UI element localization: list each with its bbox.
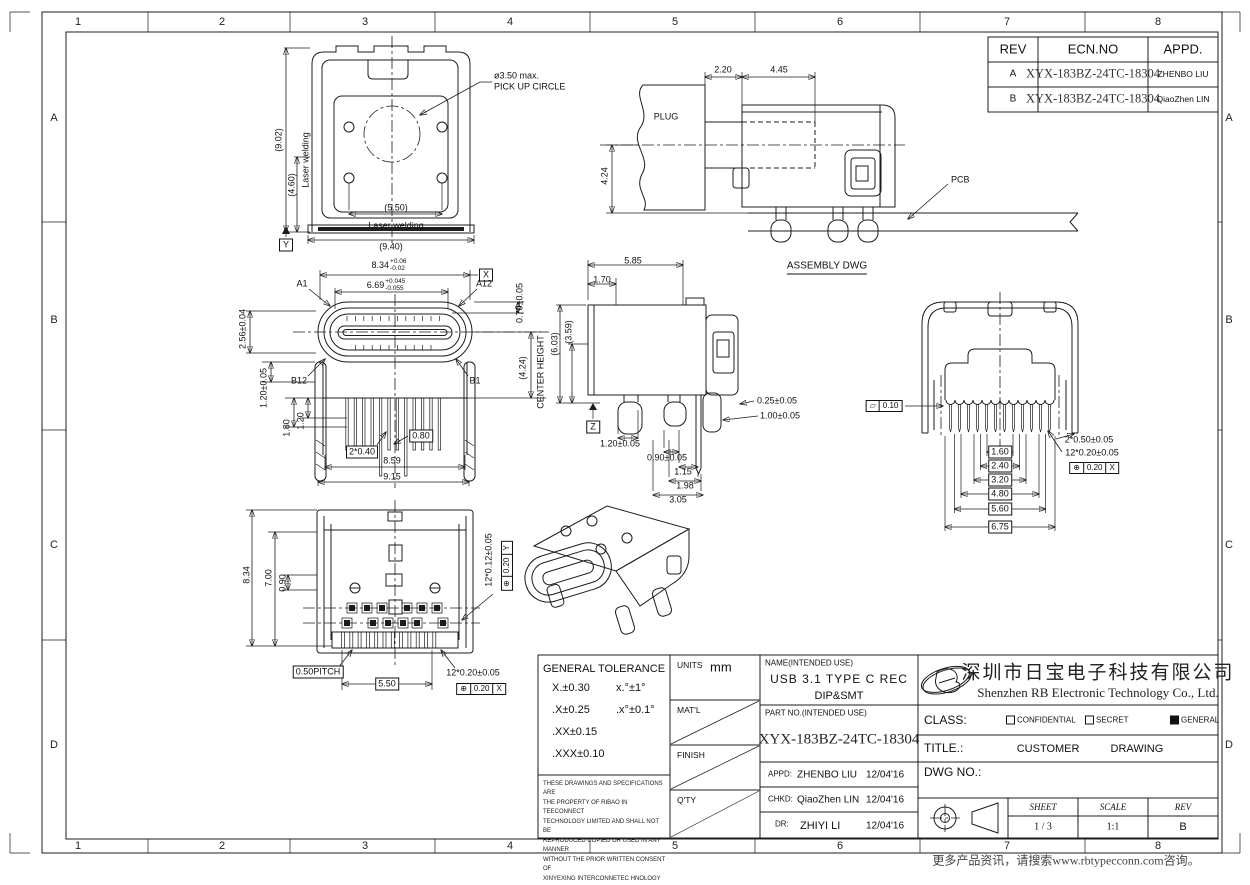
rev-header: REV — [1000, 42, 1027, 57]
rev-label: REV — [1175, 802, 1192, 812]
rev-value: B — [1179, 821, 1186, 833]
pin-b12-label: B12 — [291, 377, 307, 386]
class-secret: SECRET — [1096, 716, 1128, 725]
plug-label: PLUG — [654, 113, 679, 122]
datum-z: Z — [586, 421, 600, 434]
matl-label: MAT'L — [677, 705, 701, 715]
zone-col: 3 — [362, 16, 368, 28]
zone-col: 1 — [75, 840, 81, 852]
position-frame-y: ⊕ 0.20 Y — [501, 541, 513, 591]
dim-center-height-asm: 4.24 — [601, 167, 610, 185]
zone-row: C — [1225, 539, 1233, 551]
flatness-frame: ▱ 0.10 — [866, 400, 903, 412]
pin-a1-label: A1 — [296, 280, 307, 289]
zone-row: D — [50, 739, 58, 751]
dim-span-2: 2.40 — [988, 460, 1012, 473]
zone-col: 5 — [672, 840, 678, 852]
dim-pin-thickness: 0.25±0.05 — [757, 397, 797, 406]
zone-col: 1 — [75, 16, 81, 28]
dim-leg-3: 1.15 — [674, 468, 692, 477]
title-label: TITLE.: — [924, 741, 963, 755]
zone-col: 5 — [672, 16, 678, 28]
zone-col: 2 — [219, 16, 225, 28]
appd-date: 12/04'16 — [866, 770, 904, 781]
dim-leg-offset: 1.20±0.05 — [260, 368, 269, 408]
dim-total-height: (6.03) — [551, 332, 560, 356]
dim-tongue-offset: 0.70±0.05 — [516, 283, 525, 323]
units-value: mm — [710, 660, 732, 675]
laser-welding-note: Laser welding — [368, 222, 424, 231]
company-name-en: Shenzhen RB Electronic Technology Co., L… — [977, 685, 1218, 701]
zone-col: 4 — [507, 16, 513, 28]
name-label: NAME(INTENDED USE) — [765, 659, 853, 668]
laser-welding-note-vertical: Laser welding — [302, 132, 311, 188]
zone-col: 3 — [362, 840, 368, 852]
position-icon: ⊕ — [502, 576, 512, 590]
tol-r1b: x.°±1° — [616, 682, 646, 694]
dim-pin-len-1: 1.80 — [283, 419, 292, 437]
footer-note: 更多产品资讯，请搜索www.rbtypecconn.com咨询。 — [932, 852, 1199, 869]
dim-height-total: (9.02) — [275, 128, 284, 152]
checkbox-confidential — [1006, 716, 1015, 725]
drawing-title: CUSTOMER DRAWING — [1017, 743, 1164, 755]
zone-row: C — [50, 539, 58, 551]
pickup-circle-note: PICK UP CIRCLE — [494, 83, 565, 92]
zone-col: 8 — [1155, 16, 1161, 28]
zone-col: 2 — [219, 840, 225, 852]
zone-row: D — [1225, 739, 1233, 751]
zone-col: 4 — [507, 840, 513, 852]
zone-row: A — [1225, 112, 1232, 124]
zone-col: 7 — [1004, 840, 1010, 852]
dim-pin-len-2: 1.20 — [297, 412, 306, 430]
chkd-name: QiaoZhen LIN — [797, 795, 859, 806]
rev-a-ecn: XYX-183BZ-24TC-18304 — [1026, 67, 1160, 82]
position-icon: ⊕ — [1070, 463, 1084, 473]
rev-b-appd: QiaoZhen LIN — [1157, 94, 1210, 104]
units-label: UNITS — [677, 660, 703, 670]
dim-span-6: 6.75 — [988, 521, 1012, 534]
product-name-2: DIP&SMT — [815, 690, 864, 702]
dim-span-5: 5.60 — [988, 503, 1012, 516]
flatness-icon: ▱ — [867, 401, 880, 411]
tol-r1a: X.±0.30 — [552, 682, 590, 694]
dim-max-width: 9.15 — [383, 473, 401, 482]
tol-r2a: .X±0.25 — [552, 704, 590, 716]
dim-front-lip: 1.70 — [593, 276, 611, 285]
appd-header: APPD. — [1163, 42, 1202, 57]
dim-leg-5: 3.05 — [669, 496, 687, 505]
dim-tongue-width: 6.69 +0.045-0.055 — [367, 278, 406, 292]
dwg-no-label: DWG NO.: — [924, 765, 981, 779]
pin-a12-label: A12 — [476, 280, 492, 289]
tolerance-title: GENERAL TOLERANCE — [543, 663, 665, 675]
dim-leg-2: 0.90±0.05 — [647, 454, 687, 463]
zone-col: 6 — [837, 840, 843, 852]
legal-notice: THESE DRAWINGS AND SPECIFICATIONS ARE TH… — [543, 780, 667, 885]
dim-center-height: (4.24) — [519, 356, 528, 380]
class-confidential: CONFIDENTIAL — [1017, 716, 1076, 725]
qty-label: Q'TY — [677, 795, 696, 805]
position-icon: ⊕ — [457, 684, 471, 694]
pcb-label: PCB — [951, 176, 970, 185]
dim-plug-gap: 2.20 — [714, 66, 732, 75]
dim-rear-legs: 2*0.50±0.05 — [1065, 436, 1113, 445]
dr-label: DR: — [775, 820, 789, 829]
class-label: CLASS: — [924, 713, 967, 727]
chkd-label: CHKD: — [768, 795, 793, 804]
appd-label: APPD: — [768, 770, 792, 779]
scale-value: 1:1 — [1107, 822, 1120, 833]
dim-body-height: 7.00 — [265, 569, 274, 587]
dim-shell-height: 2.56±0.04 — [239, 309, 248, 349]
rev-b: B — [1010, 94, 1017, 105]
product-name: USB 3.1 TYPE C REC — [770, 672, 908, 686]
finish-label: FINISH — [677, 750, 705, 760]
pin-b1-label: B1 — [469, 377, 480, 386]
checkbox-secret — [1085, 716, 1094, 725]
dr-name: ZHIYI LI — [800, 820, 840, 832]
dim-pad-offset: 0.90 — [279, 574, 288, 592]
assembly-caption: ASSEMBLY DWG — [787, 262, 867, 275]
dim-shell-height-side: (3.59) — [565, 320, 574, 344]
chkd-date: 12/04'16 — [866, 795, 904, 806]
position-frame-x2: ⊕ 0.20 X — [456, 683, 506, 695]
zone-row: A — [50, 112, 57, 124]
zone-row: B — [1225, 314, 1232, 326]
tol-r4a: .XXX±0.10 — [552, 748, 605, 760]
dim-leg-span: 8.59 — [383, 457, 401, 466]
dim-weld-width: (5.50) — [384, 204, 408, 213]
appd-name: ZHENBO LIU — [797, 770, 857, 781]
rev-a: A — [1010, 69, 1017, 80]
zone-row: B — [50, 314, 57, 326]
dim-pitch: 0.50PITCH — [293, 666, 344, 679]
part-number: XYX-183BZ-24TC-18304 — [759, 732, 920, 749]
dim-span-1: 1.60 — [988, 446, 1012, 459]
dim-shell-width: 8.34 +0.06-0.02 — [372, 258, 407, 272]
part-label: PART NO.(INTENDED USE) — [765, 709, 867, 718]
class-general: GENERAL — [1181, 716, 1219, 725]
zone-col: 6 — [837, 16, 843, 28]
pickup-circle-dia: ø3.50 max. — [494, 72, 539, 81]
scale-label: SCALE — [1100, 802, 1127, 812]
rev-a-appd: ZHENBO LIU — [1157, 69, 1208, 79]
dim-width-total: (9.40) — [379, 243, 403, 252]
tol-r2b: .x°±0.1° — [616, 704, 655, 716]
rev-b-ecn: XYX-183BZ-24TC-18304 — [1026, 92, 1160, 107]
center-height-note: CENTER HEIGHT — [537, 335, 546, 409]
dr-date: 12/04'16 — [866, 821, 904, 832]
dim-pin-gap: 0.80 — [409, 430, 433, 443]
dim-leg-1: 1.20±0.05 — [600, 440, 640, 449]
sheet-value: 1 / 3 — [1034, 822, 1052, 833]
dim-span-4: 4.80 — [988, 488, 1012, 501]
datum-y: Y — [279, 239, 293, 252]
dim-weld-height: (4.60) — [288, 173, 297, 197]
dim-insert-depth: 4.45 — [770, 66, 788, 75]
dim-pin-span: 5.50 — [375, 678, 399, 691]
zone-col: 7 — [1004, 16, 1010, 28]
sheet-label: SHEET — [1030, 802, 1057, 812]
tol-r3a: .XX±0.15 — [552, 726, 597, 738]
dim-leg-width: 1.00±0.05 — [760, 412, 800, 421]
dim-pads: 12*0.12±0.05 — [485, 533, 494, 587]
dim-bottom-pins: 12*0.20±0.05 — [446, 669, 500, 678]
checkbox-general — [1170, 716, 1179, 725]
dim-body-total: 8.34 — [243, 566, 252, 584]
company-name-cn: 深圳市日宝电子科技有限公司 — [961, 658, 1234, 685]
annotation-layer: 1 2 3 4 5 6 7 8 1 2 3 4 5 6 7 8 A B C D … — [0, 0, 1250, 885]
dim-rear-pins: 12*0.20±0.05 — [1065, 449, 1119, 458]
drawing-sheet: 1 2 3 4 5 6 7 8 1 2 3 4 5 6 7 8 A B C D … — [0, 0, 1250, 885]
dim-leg-4: 1.98 — [676, 482, 694, 491]
position-frame-x: ⊕ 0.20 X — [1069, 462, 1119, 474]
dim-pin-width: 2*0.40 — [346, 446, 378, 459]
zone-col: 8 — [1155, 840, 1161, 852]
dim-depth: 5.85 — [624, 257, 642, 266]
ecn-header: ECN.NO — [1068, 42, 1119, 57]
dim-span-3: 3.20 — [988, 474, 1012, 487]
